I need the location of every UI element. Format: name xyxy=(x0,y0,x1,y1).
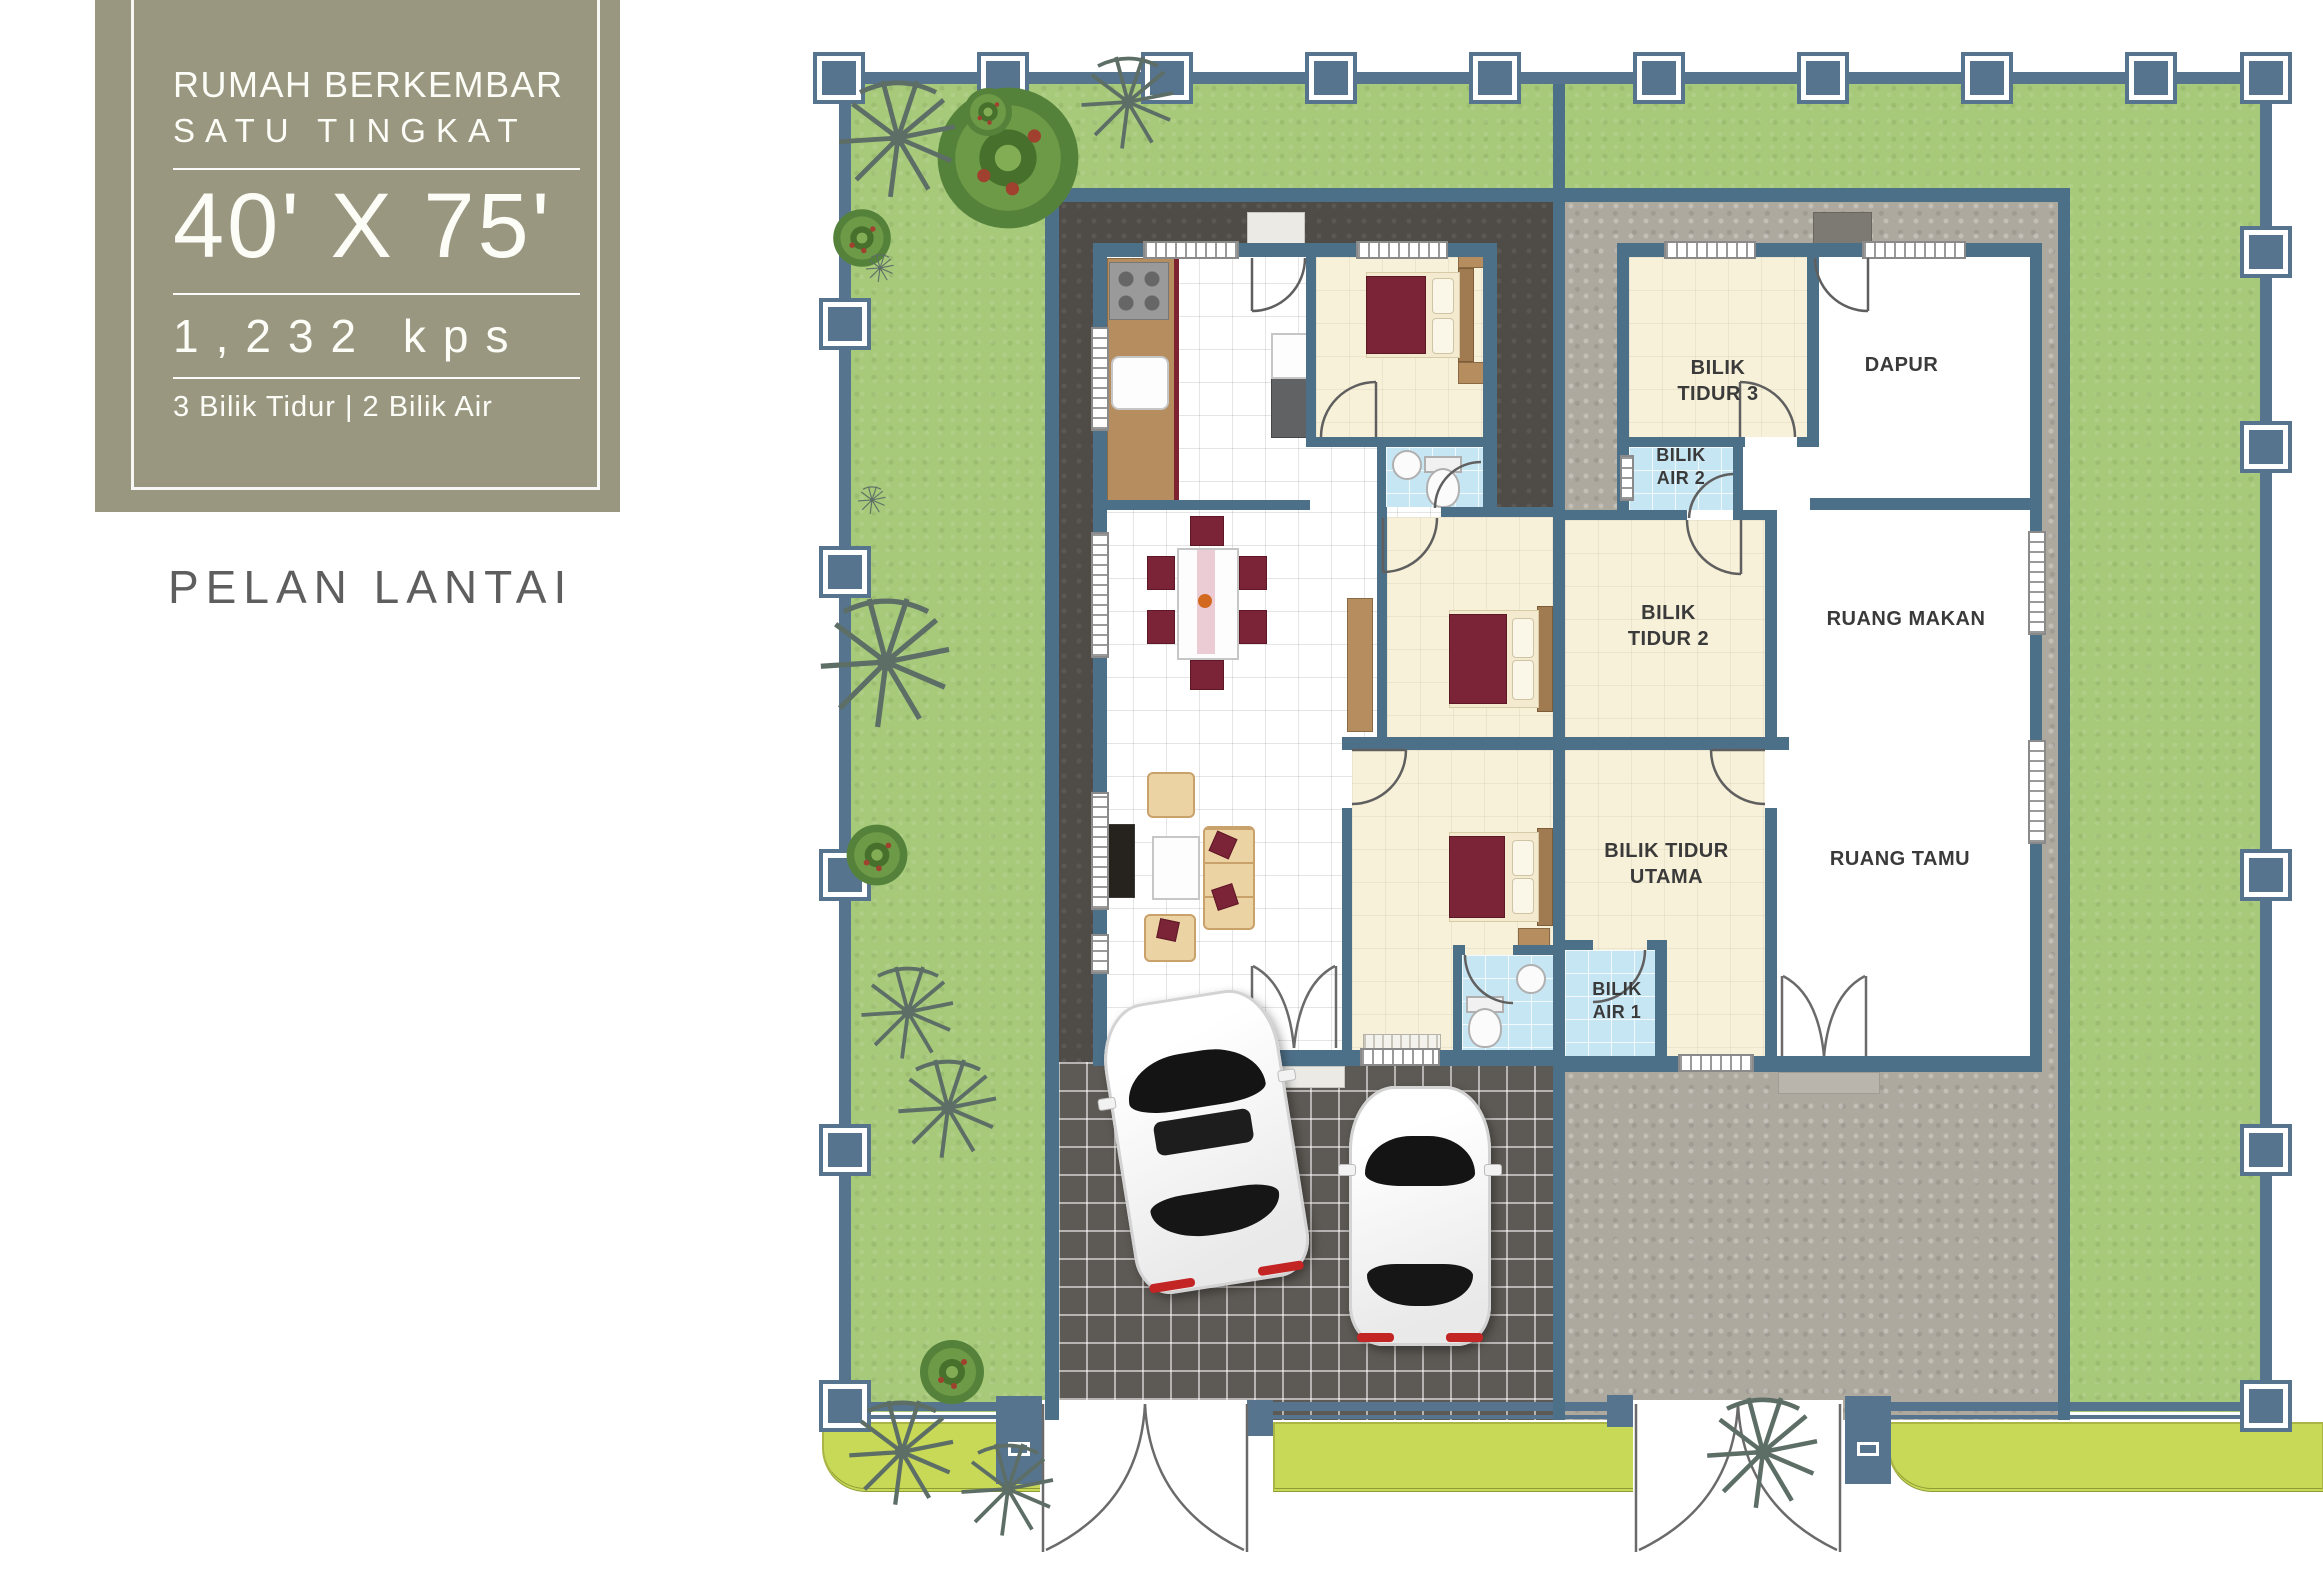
pillow xyxy=(1512,840,1534,876)
door-step xyxy=(1778,1072,1880,1094)
wall-segment xyxy=(1441,507,1565,517)
gate-opening-right xyxy=(1633,1400,1843,1556)
wall-segment xyxy=(1565,737,1789,750)
fence-post xyxy=(2244,56,2288,100)
dining-chair xyxy=(1147,556,1175,590)
fence-bottom-rail xyxy=(1888,1415,2266,1419)
fence-bottom-rail xyxy=(1888,1402,2266,1411)
pillow xyxy=(1512,878,1534,914)
wall-segment xyxy=(1797,437,1819,447)
gate-post xyxy=(1607,1395,1633,1427)
pillow xyxy=(1432,278,1454,314)
wall-segment xyxy=(2058,188,2070,1420)
bed-headboard xyxy=(1458,268,1474,362)
stove xyxy=(1109,262,1169,320)
fence-right xyxy=(2260,72,2272,1420)
fence-post xyxy=(2244,230,2288,274)
car-taillight xyxy=(1446,1333,1483,1342)
car-taillight xyxy=(1357,1333,1394,1342)
wall-segment xyxy=(1733,437,1743,520)
sideboard xyxy=(1347,598,1373,732)
road-verge-right xyxy=(1888,1422,2323,1492)
window xyxy=(1143,241,1239,259)
centerpiece xyxy=(1198,594,1212,608)
fence-post xyxy=(2129,56,2173,100)
window xyxy=(1356,241,1448,259)
dining-chair xyxy=(1190,660,1224,690)
fence-post xyxy=(1145,56,1189,100)
fence-post xyxy=(817,56,861,100)
door-step xyxy=(1247,212,1305,245)
dining-chair xyxy=(1190,516,1224,546)
wall-segment xyxy=(1483,243,1497,517)
wall-segment xyxy=(1342,737,1565,750)
party-wall xyxy=(1553,84,1565,1420)
window xyxy=(2028,740,2046,844)
fence-post xyxy=(2244,425,2288,469)
fence-bottom-rail xyxy=(845,1415,996,1419)
window xyxy=(1091,327,1109,431)
wall-segment xyxy=(1306,437,1497,447)
window xyxy=(1360,1048,1440,1066)
window xyxy=(2028,531,2046,635)
car-mirror xyxy=(1484,1164,1502,1176)
wall-segment xyxy=(1807,243,1819,447)
room-label-ruang-makan: RUANG MAKAN xyxy=(1782,606,2030,632)
wall-segment xyxy=(1565,510,1687,520)
fence-post xyxy=(1473,56,1517,100)
kitchen-sink xyxy=(1111,356,1169,410)
fence-post xyxy=(2244,1384,2288,1428)
wall-segment xyxy=(1565,1056,2042,1072)
window xyxy=(1678,1054,1754,1072)
pillow xyxy=(1432,318,1454,354)
dining-chair xyxy=(1239,610,1267,644)
washing-machine xyxy=(1271,333,1309,379)
room-label-bilik-tidur-2: BILIK TIDUR 2 xyxy=(1572,600,1765,652)
window xyxy=(1091,792,1109,910)
wall-segment xyxy=(1765,510,1777,737)
gate-opening-left xyxy=(1040,1400,1249,1556)
window xyxy=(1664,241,1756,259)
wall-segment xyxy=(1513,945,1565,955)
fence-post xyxy=(1801,56,1845,100)
fence-post xyxy=(823,550,867,594)
window xyxy=(1091,532,1109,658)
car-body xyxy=(1349,1086,1491,1346)
gate-post xyxy=(1247,1400,1273,1436)
fence-post xyxy=(1309,56,1353,100)
basin xyxy=(1516,964,1546,994)
tv-cabinet xyxy=(1107,824,1135,898)
fence-post xyxy=(1637,56,1681,100)
fence-post xyxy=(823,1128,867,1172)
fence-post xyxy=(1965,56,2009,100)
dining-chair xyxy=(1147,610,1175,644)
dining-chair xyxy=(1239,556,1267,590)
fridge xyxy=(1271,378,1307,438)
wall-segment xyxy=(1810,498,2042,510)
fence-top xyxy=(833,72,2272,84)
wall-segment xyxy=(1565,940,1593,950)
pillow xyxy=(1512,618,1534,658)
night-stand xyxy=(1458,362,1484,384)
fence-post xyxy=(823,853,867,897)
road-verge-middle xyxy=(1273,1422,1637,1492)
gate-pillar xyxy=(1845,1396,1891,1484)
room-label-ruang-tamu: RUANG TAMU xyxy=(1775,846,2025,872)
armchair xyxy=(1147,772,1195,818)
toilet xyxy=(1426,468,1460,508)
fence-left xyxy=(839,72,851,1420)
window xyxy=(1862,241,1966,259)
room-label-bilik-tidur-utama: BILIK TIDUR UTAMA xyxy=(1568,838,1765,890)
wall-segment xyxy=(2030,243,2042,1072)
gate-pillar xyxy=(996,1396,1042,1484)
floor-plan-sheet: RUMAH BERKEMBAR SATU TINGKAT 40' X 75' 1… xyxy=(0,0,2323,1574)
wall-segment xyxy=(1306,243,1316,447)
wall-segment xyxy=(1377,437,1386,517)
right-bedroom3-floor xyxy=(1629,257,1807,437)
wall-segment xyxy=(1045,188,1059,1420)
fence-post xyxy=(823,302,867,346)
car-mirror xyxy=(1338,1164,1356,1176)
fence-post xyxy=(823,1384,867,1428)
bed-headboard xyxy=(1537,828,1553,926)
fence-bottom-rail xyxy=(845,1402,996,1411)
bed-blanket xyxy=(1449,836,1505,918)
wall-segment xyxy=(1342,808,1352,1050)
wall-segment xyxy=(1093,500,1310,510)
site-plan: BILIK TIDUR 3 DAPUR BILIK AIR 2 BILIK TI… xyxy=(0,0,2323,1574)
fence-post xyxy=(2244,1128,2288,1172)
window xyxy=(1091,934,1109,974)
pillow xyxy=(1512,660,1534,700)
toilet xyxy=(1468,1008,1502,1048)
room-label-bilik-air-2: BILIK AIR 2 xyxy=(1629,444,1733,491)
bed-headboard xyxy=(1537,606,1553,712)
coffee-table xyxy=(1152,836,1200,900)
room-label-bilik-tidur-3: BILIK TIDUR 3 xyxy=(1629,355,1807,407)
fence-post xyxy=(981,56,1025,100)
wall-segment xyxy=(1377,517,1387,737)
fence-post xyxy=(2244,853,2288,897)
room-label-dapur: DAPUR xyxy=(1794,352,2009,378)
car-hatchback xyxy=(1349,1086,1491,1346)
basin xyxy=(1392,450,1422,480)
bed-blanket xyxy=(1366,276,1426,354)
wall-segment xyxy=(1453,945,1462,1052)
room-label-bilik-air-1: BILIK AIR 1 xyxy=(1567,978,1667,1025)
cushion xyxy=(1156,918,1180,942)
bed-blanket xyxy=(1449,614,1507,704)
